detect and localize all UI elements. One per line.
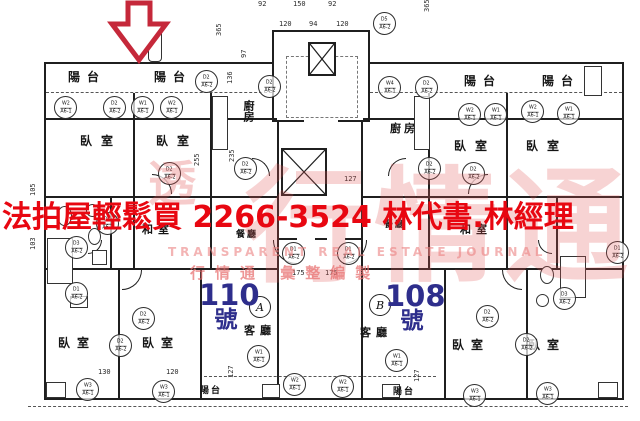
balcony-rail-dashed-line bbox=[46, 92, 272, 93]
wall-segment bbox=[361, 120, 363, 398]
dimension-label: 130 bbox=[98, 369, 111, 376]
door-window-code-marker: D5A6-2 bbox=[373, 12, 396, 35]
wall-segment bbox=[368, 62, 624, 64]
room-label: 陽台 bbox=[68, 68, 106, 85]
elevator-shaft bbox=[308, 42, 336, 76]
door-window-code-marker: W3A6-1 bbox=[463, 384, 486, 407]
room-label: 臥室 bbox=[142, 334, 180, 351]
room-label: 廚房 bbox=[240, 100, 256, 122]
pipe-shaft bbox=[584, 66, 602, 96]
door-window-code-marker: D2A6-2 bbox=[132, 307, 155, 330]
dimension-label: 103 bbox=[30, 237, 37, 250]
door-swing-arc bbox=[538, 240, 552, 254]
door-window-code-marker: D3A6-2 bbox=[65, 236, 88, 259]
ad-headline: 法拍屋輕鬆買 2266-3524 林代書.林經理 bbox=[2, 192, 640, 236]
door-window-code-marker: W3A6-1 bbox=[152, 380, 175, 403]
unit-110-digits: 110 bbox=[199, 282, 253, 308]
red-down-arrow-icon bbox=[104, 0, 174, 66]
door-window-code-marker: D1A6-2 bbox=[606, 241, 629, 264]
door-window-code-marker: D1A6-2 bbox=[337, 242, 360, 265]
door-window-code-marker: D2A6-2 bbox=[515, 333, 538, 356]
room-label: 陽台 bbox=[464, 72, 502, 89]
dimension-label: 150 bbox=[293, 1, 306, 8]
door-window-code-marker: D3A6-2 bbox=[553, 287, 576, 310]
dimension-label: 365 bbox=[424, 0, 431, 12]
dimension-label: 175 bbox=[325, 270, 338, 277]
wall-segment bbox=[133, 93, 135, 268]
wall-segment bbox=[118, 268, 120, 398]
door-window-code-marker: W1A6-1 bbox=[247, 345, 270, 368]
wall-segment bbox=[506, 93, 508, 268]
door-window-code-marker: W2A6-1 bbox=[458, 103, 481, 126]
dimension-label: 175 bbox=[292, 270, 305, 277]
room-label: 廚房 bbox=[390, 120, 418, 136]
dimension-label: 120 bbox=[279, 21, 292, 28]
balcony-rail-dashed-line bbox=[28, 406, 628, 407]
door-window-code-marker: D2A6-2 bbox=[234, 157, 257, 180]
room-label: 臥室 bbox=[156, 132, 198, 149]
dimension-label: 92 bbox=[328, 1, 336, 8]
watermark-english-line: TRANSPARENT REAL ESTATE JOURNAL bbox=[168, 245, 488, 259]
door-swing-arc bbox=[388, 158, 406, 176]
door-window-code-marker: D2A6-2 bbox=[418, 157, 441, 180]
dimension-label: 97 bbox=[241, 50, 248, 58]
room-label: 陽台 bbox=[393, 384, 415, 397]
dimension-label: 127 bbox=[344, 176, 357, 183]
room-label: 臥室 bbox=[80, 132, 122, 149]
planter-box bbox=[598, 382, 618, 398]
room-label: 臥室 bbox=[58, 334, 96, 351]
dimension-label: 92 bbox=[258, 1, 266, 8]
wall-segment bbox=[272, 30, 370, 32]
door-window-code-marker: D2A6-2 bbox=[476, 305, 499, 328]
stairwell bbox=[281, 148, 327, 196]
door-window-code-marker: D2A6-2 bbox=[158, 162, 181, 185]
door-swing-arc bbox=[502, 270, 522, 290]
dimension-label: 235 bbox=[229, 149, 236, 162]
kitchen-counter-fixture bbox=[212, 96, 228, 150]
door-window-code-marker: D2A6-2 bbox=[415, 76, 438, 99]
washer-fixture bbox=[92, 250, 107, 265]
door-window-code-marker: D2A6-2 bbox=[103, 96, 126, 119]
wall-segment bbox=[315, 238, 327, 240]
planter-box bbox=[46, 382, 66, 398]
unit-108-number: 108 號 bbox=[385, 283, 439, 333]
unit-110-number: 110 號 bbox=[199, 282, 253, 332]
planter-box bbox=[262, 384, 280, 398]
dimension-label: 255 bbox=[194, 153, 201, 166]
dimension-label: 120 bbox=[336, 21, 349, 28]
dimension-label: 365 bbox=[216, 23, 223, 36]
toilet-fixture bbox=[540, 266, 554, 284]
door-window-code-marker: W1A6-1 bbox=[385, 349, 408, 372]
wall-segment bbox=[338, 120, 370, 122]
door-window-code-marker: D2A6-2 bbox=[258, 75, 281, 98]
door-window-code-marker: W1A6-1 bbox=[557, 102, 580, 125]
dimension-label: 136 bbox=[227, 71, 234, 84]
door-window-code-marker: D1A6-2 bbox=[65, 282, 88, 305]
room-label: 陽台 bbox=[542, 72, 580, 89]
wall-segment bbox=[277, 120, 279, 398]
room-label: 臥室 bbox=[526, 137, 568, 154]
balcony-rail-dashed-line bbox=[204, 376, 436, 377]
room-label: 臥室 bbox=[452, 336, 490, 353]
dimension-label: 120 bbox=[166, 369, 179, 376]
room-label: 陽台 bbox=[154, 68, 192, 85]
sink-fixture bbox=[536, 294, 549, 307]
wall-segment bbox=[44, 268, 277, 270]
door-window-code-marker: W3A6-1 bbox=[76, 378, 99, 401]
door-swing-arc bbox=[122, 270, 142, 290]
room-label: 陽台 bbox=[200, 383, 222, 396]
door-window-code-marker: W2A6-1 bbox=[283, 373, 306, 396]
door-window-code-marker: W2A6-1 bbox=[331, 375, 354, 398]
dimension-label: 94 bbox=[309, 21, 317, 28]
wall-segment bbox=[368, 30, 370, 122]
door-window-code-marker: D1A6-2 bbox=[282, 242, 305, 265]
dimension-label: 127 bbox=[228, 365, 235, 378]
floor-plan-flyer: 透 行情通 TRANSPARENT REAL ESTATE JOURNAL 行情… bbox=[0, 0, 640, 421]
door-window-code-marker: W3A6-1 bbox=[536, 382, 559, 405]
door-window-code-marker: W1A6-1 bbox=[484, 103, 507, 126]
door-window-code-marker: W2A6-1 bbox=[521, 100, 544, 123]
door-window-code-marker: D2A6-2 bbox=[109, 334, 132, 357]
door-window-code-marker: D2A6-2 bbox=[195, 70, 218, 93]
unit-108-digits: 108 bbox=[385, 283, 439, 309]
door-window-code-marker: W4A6-1 bbox=[378, 76, 401, 99]
door-window-code-marker: W2A6-1 bbox=[54, 96, 77, 119]
door-window-code-marker: W1A6-1 bbox=[131, 96, 154, 119]
room-label: 臥室 bbox=[454, 137, 496, 154]
door-window-code-marker: D2A6-2 bbox=[462, 162, 485, 185]
door-window-code-marker: W2A6-1 bbox=[160, 96, 183, 119]
dimension-label: 127 bbox=[414, 369, 421, 382]
